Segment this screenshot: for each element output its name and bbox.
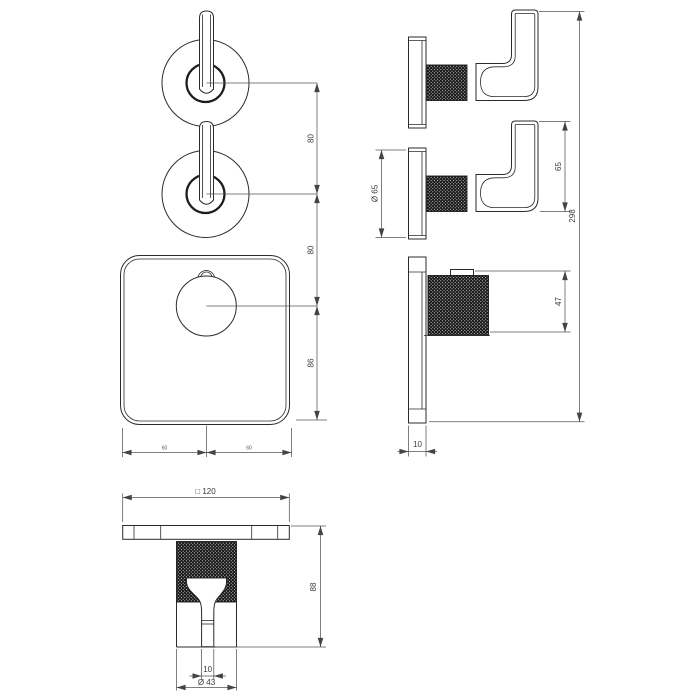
side-plate [409, 37, 427, 128]
dim-label-spout-width: 10 [203, 665, 212, 674]
knurled-collar [427, 65, 467, 101]
dim-label-half-right: 60 [246, 446, 252, 452]
side-view-valve [409, 257, 491, 423]
dim-label-half-left: 60 [162, 446, 168, 452]
bottom-view [123, 526, 290, 648]
technical-drawing-page: 80 80 86 60 60 Ø 65 [0, 0, 700, 700]
square-plate-outer [121, 256, 290, 425]
front-horizontal-dimensions: 60 60 [123, 428, 292, 457]
front-vertical-dimensions: 80 80 86 [296, 83, 327, 420]
valve-side-plate [409, 257, 427, 423]
dim-label-handle-to-knob: 80 [307, 245, 316, 254]
dim-label-overall-height: 298 [568, 209, 577, 223]
front-view-plate [121, 256, 318, 458]
bottom-plate-edge [123, 526, 290, 540]
side-view-handle-top [409, 10, 539, 128]
handle-bottom-lever [200, 122, 214, 205]
dim-label-handle-length: 65 [554, 162, 563, 171]
mixer-technical-drawing: 80 80 86 60 60 Ø 65 [0, 0, 700, 700]
dim-label-body-diameter: Ø 43 [198, 678, 216, 687]
dim-label-plate-diameter: Ø 65 [371, 184, 380, 202]
knob-side-notch [451, 270, 474, 276]
knob-side-knurled [428, 276, 489, 336]
dim-label-handle-spacing: 80 [307, 134, 316, 143]
dim-label-plate-square: □ 120 [195, 487, 216, 496]
dim-label-body-height: 88 [309, 582, 318, 591]
square-plate-inner [124, 259, 286, 421]
dim-label-knob-to-bottom: 86 [307, 358, 316, 367]
front-view-handles [162, 11, 317, 238]
dim-label-knob-depth: 47 [554, 297, 563, 306]
handle-top-lever [200, 11, 214, 93]
lever-side-outline [476, 10, 538, 101]
dim-label-plate-thickness: 10 [413, 440, 422, 449]
side-view-handle-bottom [409, 121, 539, 239]
bottom-spout [187, 578, 227, 647]
